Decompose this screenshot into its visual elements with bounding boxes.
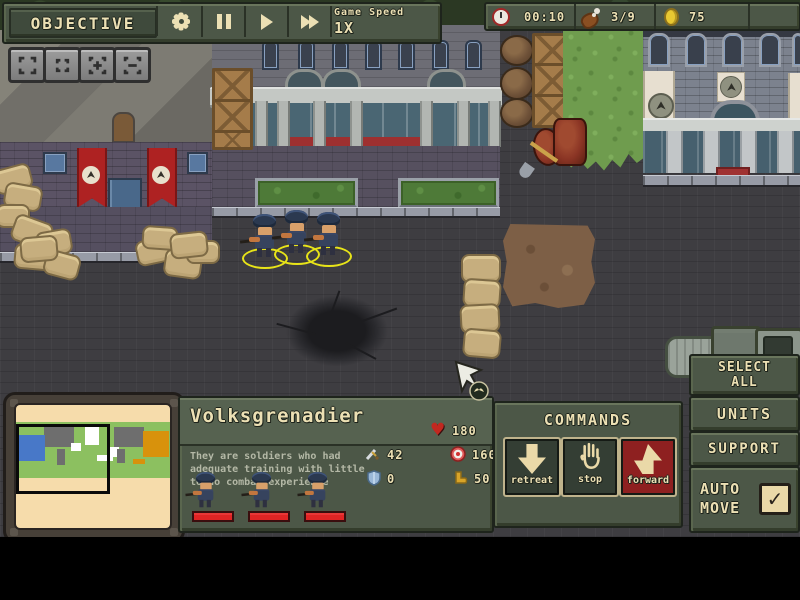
health-bar — [192, 511, 234, 522]
gear-icon — [170, 11, 192, 33]
arcade-building — [212, 25, 500, 215]
zoom-out-icon — [123, 56, 142, 75]
gold-cell: 75 — [656, 4, 750, 29]
divider — [156, 6, 158, 36]
hedge-planter — [255, 178, 358, 208]
arch-window — [648, 33, 670, 67]
drumstick-icon — [581, 8, 601, 26]
forward-icon — [634, 444, 662, 474]
arch-window — [398, 40, 415, 70]
eagle-icon — [155, 169, 167, 181]
commands-title: COMMANDS — [495, 411, 681, 429]
map-viewport[interactable]: OBJECTIVE Game Speed 1X — [0, 0, 800, 537]
column — [277, 101, 290, 147]
hedge-planter — [398, 178, 499, 208]
column — [420, 101, 433, 147]
minimap-paper — [14, 403, 172, 530]
forward-label: forward — [627, 475, 669, 486]
helmet — [253, 214, 276, 228]
pause-icon — [217, 14, 222, 29]
unit-info-panel: Volksgrenadier ♥ 180 They are soldiers w… — [178, 396, 494, 533]
letterbox-bottom — [0, 537, 800, 600]
unit-panel-header: Volksgrenadier ♥ 180 — [180, 398, 492, 446]
select-all-label: SELECT ALL — [710, 360, 780, 390]
eagle-emblem — [82, 166, 100, 184]
arch-window — [332, 40, 349, 70]
auto-move-toggle[interactable]: AUTO MOVE ✓ — [689, 466, 800, 533]
game-speed-display: Game Speed 1X — [334, 7, 436, 37]
select-all-button[interactable]: SELECT ALL — [689, 354, 800, 396]
column — [488, 101, 501, 147]
arch-window — [365, 40, 382, 70]
game-speed-value: 1X — [334, 19, 436, 37]
column — [350, 101, 363, 147]
fullscreen-button[interactable] — [8, 47, 46, 83]
expand-icon — [18, 56, 37, 75]
play-button[interactable] — [246, 6, 289, 37]
arch-window — [298, 40, 315, 70]
minimap-viewport[interactable] — [16, 424, 110, 494]
zoom-in-icon — [88, 56, 107, 75]
game-speed-label: Game Speed — [334, 7, 436, 18]
soldier-unit[interactable] — [312, 212, 346, 262]
retreat-icon — [518, 444, 546, 474]
hq-window — [43, 152, 67, 174]
food-cell: 3/9 — [576, 4, 656, 29]
stop-button[interactable]: stop — [561, 437, 619, 497]
mouse-cursor — [448, 358, 494, 404]
gold-value: 75 — [689, 10, 705, 24]
arch-window — [722, 33, 744, 67]
unit-title: Volksgrenadier — [190, 405, 364, 427]
eagle-emblem — [152, 166, 170, 184]
attack-icon — [364, 446, 380, 462]
eagle-icon — [725, 81, 738, 94]
eagle-icon — [654, 99, 668, 113]
resource-bar: 00:10 3/9 75 — [484, 2, 800, 31]
gov-sidewalk — [643, 175, 800, 187]
arch-window — [685, 33, 707, 67]
time-value: 00:10 — [524, 10, 565, 24]
auto-move-checkbox[interactable]: ✓ — [759, 483, 791, 515]
column — [777, 131, 794, 173]
column — [313, 101, 326, 147]
top-bar: OBJECTIVE Game Speed 1X — [2, 2, 442, 44]
helmet — [285, 210, 308, 224]
range-icon — [450, 446, 466, 462]
clock-icon — [492, 8, 510, 26]
red-carpet — [360, 137, 422, 146]
game-screen: OBJECTIVE Game Speed 1X — [0, 0, 800, 600]
food-value: 3/9 — [611, 10, 636, 24]
hq-attic-window — [112, 112, 135, 143]
eagle-emblem — [648, 93, 674, 119]
health-bar — [248, 511, 290, 522]
health-value: 180 — [452, 424, 477, 438]
health-bar — [304, 511, 346, 522]
crater — [284, 294, 390, 368]
arch-window — [432, 40, 449, 70]
arch-window — [759, 33, 781, 67]
pause-button[interactable] — [203, 6, 246, 37]
column — [255, 101, 268, 147]
boot-icon — [452, 470, 468, 486]
check-icon: ✓ — [767, 487, 784, 511]
support-label: SUPPORT — [708, 441, 781, 457]
armor-value: 0 — [387, 472, 395, 486]
retreat-label: retreat — [511, 475, 553, 486]
squad-slot[interactable] — [300, 472, 350, 524]
stop-hand-icon — [575, 441, 605, 473]
center-view-button[interactable] — [43, 47, 81, 83]
zoom-in-button[interactable] — [78, 47, 116, 83]
support-button[interactable]: SUPPORT — [689, 431, 800, 467]
play-icon — [261, 14, 273, 30]
selection-ring — [306, 246, 352, 267]
helmet — [317, 212, 340, 226]
dirt-patch — [503, 224, 595, 308]
center-icon — [53, 56, 72, 75]
red-carpet — [288, 137, 316, 146]
speed-value: 50 — [474, 472, 490, 486]
forward-button[interactable]: forward — [619, 437, 677, 497]
arch-window — [792, 33, 800, 67]
auto-move-label: AUTO MOVE — [700, 480, 758, 518]
stop-label: stop — [578, 474, 602, 485]
column — [457, 101, 470, 147]
minimap-frame[interactable] — [3, 392, 185, 537]
eagle-icon — [85, 169, 97, 181]
objective-button[interactable]: OBJECTIVE — [9, 8, 157, 38]
squad-slot[interactable] — [188, 472, 238, 524]
retreat-button[interactable]: retreat — [503, 437, 561, 497]
coin-icon — [664, 8, 679, 26]
units-button[interactable]: UNITS — [689, 396, 800, 432]
hq-window — [187, 152, 208, 174]
eagle-emblem — [720, 76, 742, 98]
armor-icon — [366, 470, 382, 486]
fast-forward-button[interactable] — [289, 6, 332, 37]
gov-building — [643, 25, 800, 184]
health-icon: ♥ — [430, 420, 445, 440]
squad-slot[interactable] — [244, 472, 294, 524]
units-label: UNITS — [717, 405, 772, 423]
gov-plaque — [717, 72, 745, 102]
red-carpet — [325, 137, 351, 146]
time-cell: 00:10 — [486, 4, 576, 29]
arch-window — [465, 40, 482, 70]
settings-button[interactable] — [160, 6, 203, 37]
arch-window — [262, 40, 279, 70]
commands-panel: COMMANDS retreat stop forward — [493, 401, 683, 528]
attack-value: 42 — [387, 448, 403, 462]
objective-label: OBJECTIVE — [31, 14, 136, 33]
zoom-out-button[interactable] — [113, 47, 151, 83]
column — [666, 131, 683, 173]
